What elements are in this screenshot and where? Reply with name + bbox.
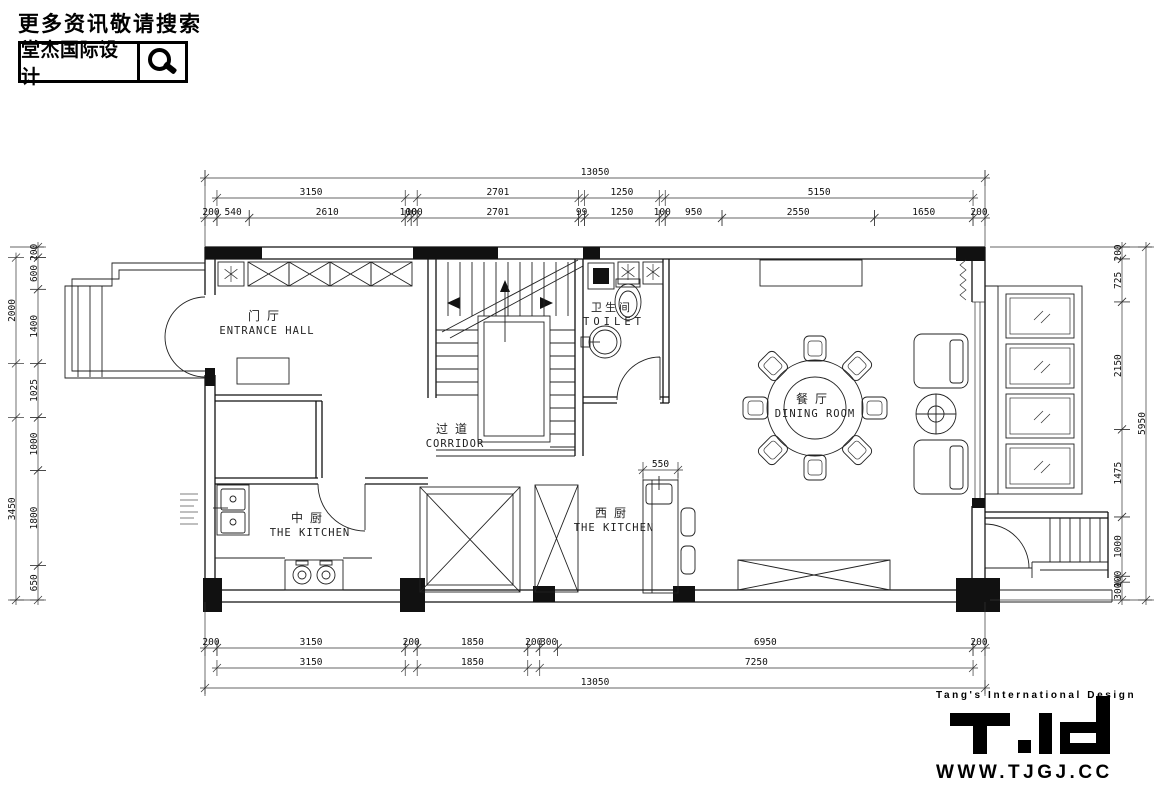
dim-row-bottom_row2: 315018507250: [212, 657, 978, 676]
dim-row-top_row3: 2005402610100100270199125010095025501650…: [200, 207, 990, 226]
room-label-kitchen-en-right: THE KITCHEN: [574, 522, 655, 534]
svg-text:300: 300: [1113, 582, 1124, 599]
room-label-toilet-cn: 卫生间: [591, 300, 633, 314]
svg-text:1650: 1650: [912, 207, 935, 218]
rear-stairs: [985, 524, 1112, 602]
tid-logo-t-stem: [973, 713, 987, 754]
svg-text:5950: 5950: [1137, 412, 1148, 435]
room-label-entrance-hall-cn: 门厅: [248, 308, 286, 323]
svg-text:200: 200: [970, 637, 987, 648]
svg-text:100: 100: [654, 207, 671, 218]
svg-text:6950: 6950: [754, 637, 777, 648]
svg-text:1400: 1400: [29, 315, 40, 338]
entrance-double-door: [165, 297, 205, 377]
svg-text:5150: 5150: [808, 187, 831, 198]
svg-text:13050: 13050: [581, 167, 610, 178]
svg-text:1250: 1250: [610, 207, 633, 218]
svg-text:300: 300: [540, 637, 557, 648]
room-label-kitchen-en-left: THE KITCHEN: [270, 527, 351, 539]
room-label-dining-cn: 餐厅: [796, 391, 834, 406]
svg-text:1475: 1475: [1113, 462, 1124, 485]
svg-text:540: 540: [225, 207, 242, 218]
footer-tagline: Tang's International Design: [936, 690, 1151, 701]
svg-text:725: 725: [1113, 272, 1124, 289]
svg-text:1850: 1850: [461, 657, 484, 668]
svg-text:100: 100: [406, 207, 423, 218]
generated-details: [78, 262, 1100, 562]
svg-text:1000: 1000: [1113, 535, 1124, 558]
room-labels: 门厅 ENTRANCE HALL 过道 CORRIDOR 卫生间 TOILET …: [219, 300, 855, 539]
svg-text:200: 200: [970, 207, 987, 218]
room-label-entrance-hall-en: ENTRANCE HALL: [219, 325, 314, 337]
tid-logo-dot: [1018, 740, 1031, 753]
footer-brand: Tang's International Design WWW.TJGJ.CC: [936, 690, 1151, 790]
dim-row-left_outer: 20003450: [7, 253, 24, 605]
dim-row-top_row2: 3150270112505150: [212, 187, 978, 206]
svg-text:3450: 3450: [7, 497, 18, 520]
svg-text:2150: 2150: [1113, 354, 1124, 377]
svg-text:7250: 7250: [745, 657, 768, 668]
svg-text:1025: 1025: [29, 379, 40, 402]
elevator-shaft: [420, 485, 578, 592]
svg-text:2550: 2550: [787, 207, 810, 218]
dining-furniture: [738, 260, 890, 590]
svg-text:950: 950: [685, 207, 702, 218]
room-label-kitchen-cn-right: 西厨: [595, 506, 633, 520]
walls: [205, 247, 1108, 602]
tid-logo: [936, 703, 1151, 756]
bay-window: [960, 260, 1082, 494]
lounge-furniture: [914, 334, 968, 494]
svg-text:13050: 13050: [581, 677, 610, 688]
svg-text:2701: 2701: [486, 187, 509, 198]
svg-text:200: 200: [29, 243, 40, 260]
svg-text:3150: 3150: [300, 657, 323, 668]
floor-plan: 1305031502701125051502005402610100100270…: [0, 0, 1158, 800]
svg-text:600: 600: [29, 265, 40, 282]
website-url: WWW.TJGJ.CC: [936, 762, 1151, 784]
room-label-corridor-en: CORRIDOR: [426, 438, 485, 450]
room-label-dining-en: DINING ROOM: [775, 408, 856, 420]
dim-row-island: 550: [638, 459, 683, 478]
dim-row-right_outer: 5950: [1137, 242, 1154, 605]
tid-logo-i: [1039, 713, 1052, 754]
svg-text:650: 650: [29, 574, 40, 591]
dim-row-top_row1: 13050: [200, 167, 990, 186]
dim-row-bottom_row3: 13050: [200, 677, 990, 696]
dim-row-right_inner: 200725215014751000100300: [1113, 242, 1130, 605]
svg-text:550: 550: [652, 459, 669, 470]
svg-text:3150: 3150: [300, 187, 323, 198]
toilet-fixtures: [581, 262, 663, 400]
dim-row-bottom_row1: 200315020018502003006950200: [200, 637, 990, 656]
tid-logo-d-stem: [1096, 696, 1110, 754]
svg-text:2610: 2610: [316, 207, 339, 218]
room-label-toilet-en: TOILET: [583, 316, 645, 328]
svg-text:1800: 1800: [29, 506, 40, 529]
room-label-corridor-cn: 过道: [436, 422, 474, 436]
entry-steps: [65, 263, 205, 378]
svg-text:1850: 1850: [461, 637, 484, 648]
svg-text:1000: 1000: [29, 432, 40, 455]
svg-text:1250: 1250: [610, 187, 633, 198]
hall-cabinets: [218, 262, 289, 384]
bar-island: [643, 476, 695, 593]
dim-row-left_inner: 2006001400102510001800650: [29, 242, 46, 605]
svg-text:3150: 3150: [300, 637, 323, 648]
svg-text:2701: 2701: [486, 207, 509, 218]
svg-text:2000: 2000: [7, 299, 18, 322]
room-label-kitchen-cn-left: 中厨: [291, 510, 329, 525]
